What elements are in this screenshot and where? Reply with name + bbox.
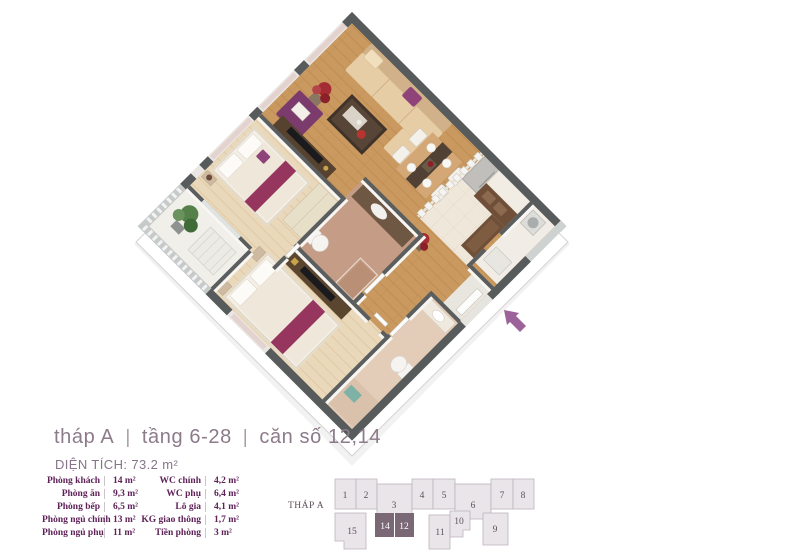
room-area: 4,2 m² [206,476,240,486]
room-table-right-column: WC chính 4,2 m² WC phụ 6,4 m² Lô gia 4,1… [139,474,240,539]
room-name: Phòng bếp [42,502,105,512]
title-unit: căn số 12,14 [259,426,381,449]
room-area: 13 m² [105,515,139,525]
title-tower: tháp A [54,426,114,449]
room-area-row: Lô gia 4,1 m² [139,500,240,513]
unit-number-highlighted: 12 [399,522,409,532]
room-name: Tiền phòng [139,528,206,538]
unit-number: 1 [343,491,348,501]
room-area: 3 m² [206,528,240,538]
unit-number: 8 [521,491,526,501]
unit-number: 3 [392,501,397,511]
room-area-row: Phòng ngủ phụ 11 m² [42,526,139,539]
room-table-left-column: Phòng khách 14 m² Phòng ăn 9,3 m² Phòng … [42,474,139,539]
room-area: 11 m² [105,528,139,538]
room-area-row: Tiền phòng 3 m² [139,526,240,539]
room-area: 9,3 m² [105,489,139,499]
unit-number: 7 [500,491,505,501]
room-area-row: Phòng ăn 9,3 m² [42,487,139,500]
room-area: 4,1 m² [206,502,240,512]
title-separator: | [123,427,133,449]
room-name: Phòng ngủ chính [42,515,105,525]
room-area-row: Phòng khách 14 m² [42,474,139,487]
room-area-row: Phòng ngủ chính 13 m² [42,513,139,526]
entrance-arrow-icon [504,310,526,332]
room-area: 14 m² [105,476,139,486]
room-name: WC phụ [139,489,206,499]
tower-label: THÁP A [288,499,324,511]
room-area-row: Phòng bếp 6,5 m² [42,500,139,513]
unit-number: 4 [420,491,425,501]
room-area: 6,5 m² [105,502,139,512]
room-area-row: WC chính 4,2 m² [139,474,240,487]
page-title: tháp A | tầng 6-28 | căn số 12,14 [54,426,381,449]
unit-number: 2 [364,491,369,501]
unit-number: 5 [442,491,447,501]
room-name: Phòng ngủ phụ [42,528,105,538]
room-name: Phòng khách [42,476,105,486]
unit-number: 9 [493,525,498,535]
room-area-table: Phòng khách 14 m² Phòng ăn 9,3 m² Phòng … [42,474,240,539]
room-area: 6,4 m² [206,489,240,499]
room-name: WC chính [139,476,206,486]
room-name: KG giao thông [139,515,206,525]
room-name: Lô gia [139,502,206,512]
room-name: Phòng ăn [42,489,105,499]
unit-number: 15 [347,527,357,537]
unit-number: 6 [471,501,476,511]
room-area-row: WC phụ 6,4 m² [139,487,240,500]
room-area-row: KG giao thông 1,7 m² [139,513,240,526]
apartment-plan [138,12,567,441]
title-floors: tầng 6-28 [142,426,232,449]
page: { "header": { "tower": "tháp A", "floors… [0,0,800,560]
unit-number-highlighted: 14 [380,522,390,532]
room-area: 1,7 m² [206,515,240,525]
unit-number: 11 [435,528,444,538]
total-area-label: DIỆN TÍCH: 73.2 m² [55,457,178,472]
unit-number: 10 [454,517,464,527]
building-key-plan: THÁP A 1 2 3 4 5 6 7 8 15 14 12 11 10 9 [280,472,542,558]
title-separator: | [241,427,251,449]
